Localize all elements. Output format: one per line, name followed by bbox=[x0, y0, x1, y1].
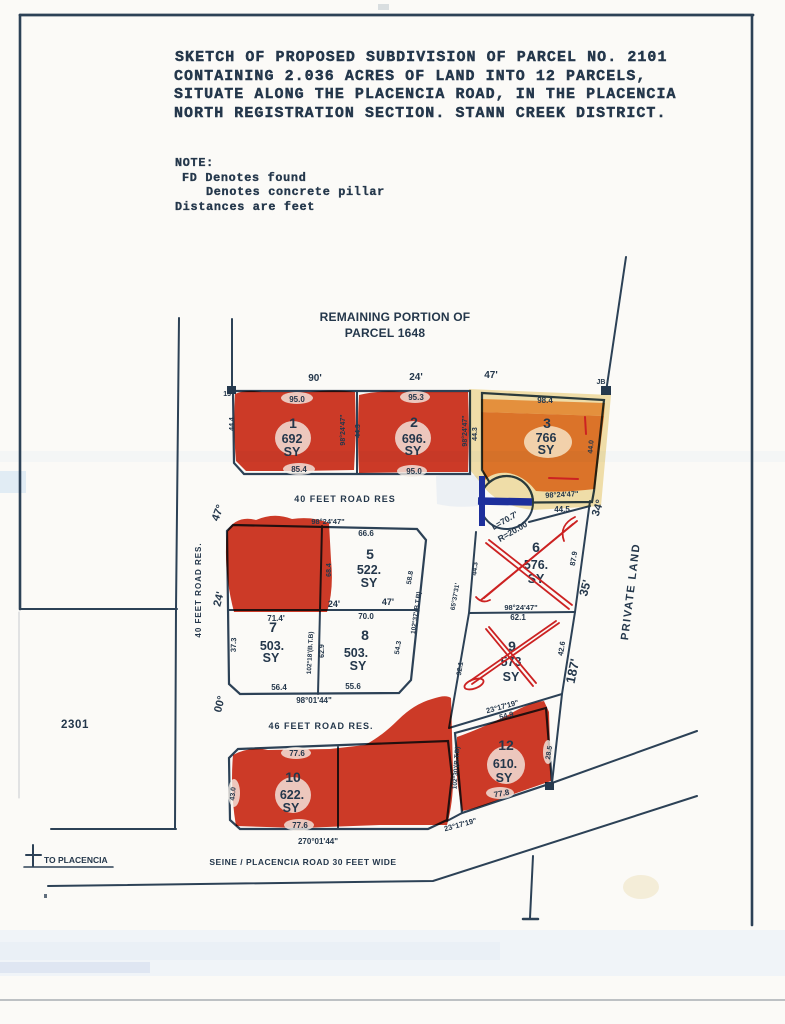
svg-text:2: 2 bbox=[410, 414, 418, 430]
svg-text:85.4: 85.4 bbox=[291, 465, 307, 474]
svg-text:98°24'47": 98°24'47" bbox=[504, 603, 538, 612]
svg-text:47': 47' bbox=[484, 370, 498, 381]
svg-text:SY: SY bbox=[350, 659, 367, 673]
svg-text:SY: SY bbox=[496, 771, 513, 785]
svg-text:55.6: 55.6 bbox=[345, 682, 361, 691]
svg-text:70.0: 70.0 bbox=[358, 612, 374, 621]
svg-text:102°18'(B.T.B): 102°18'(B.T.B) bbox=[305, 631, 315, 674]
svg-text:SY: SY bbox=[405, 444, 422, 458]
svg-text:28.5: 28.5 bbox=[545, 745, 554, 760]
svg-text:47°: 47° bbox=[210, 503, 227, 523]
svg-text:87.9: 87.9 bbox=[568, 551, 579, 567]
svg-text:NORTH REGISTRATION SECTION. ST: NORTH REGISTRATION SECTION. STANN CREEK … bbox=[174, 105, 667, 122]
svg-text:SY: SY bbox=[538, 443, 555, 457]
svg-text:65°37'31': 65°37'31' bbox=[449, 582, 462, 611]
svg-text:NOTE:: NOTE: bbox=[175, 156, 214, 170]
svg-text:35': 35' bbox=[576, 578, 594, 597]
svg-text:95.0: 95.0 bbox=[289, 395, 305, 404]
svg-text:5: 5 bbox=[366, 546, 374, 562]
svg-text:692: 692 bbox=[282, 432, 303, 446]
svg-text:SY: SY bbox=[283, 801, 300, 815]
svg-text:TO PLACENCIA: TO PLACENCIA bbox=[44, 855, 108, 865]
svg-text:77.6: 77.6 bbox=[289, 749, 305, 758]
svg-text:56.4: 56.4 bbox=[271, 683, 287, 692]
svg-text:40 FEET ROAD RES: 40 FEET ROAD RES bbox=[294, 494, 396, 504]
svg-text:54.3: 54.3 bbox=[394, 640, 403, 655]
svg-text:10: 10 bbox=[285, 769, 301, 785]
svg-text:7: 7 bbox=[269, 619, 277, 635]
svg-text:98°24'47": 98°24'47" bbox=[311, 517, 345, 526]
svg-text:REMAINING PORTION OF: REMAINING PORTION OF bbox=[320, 310, 471, 324]
svg-text:40 FEET ROAD RES.: 40 FEET ROAD RES. bbox=[194, 542, 203, 637]
svg-text:98°24'47": 98°24'47" bbox=[461, 415, 469, 446]
svg-text:2301: 2301 bbox=[61, 719, 89, 731]
svg-text:95.3: 95.3 bbox=[408, 393, 424, 402]
svg-text:62.9: 62.9 bbox=[319, 644, 326, 658]
svg-text:98.4: 98.4 bbox=[537, 396, 553, 405]
svg-text:98°24'47": 98°24'47" bbox=[339, 414, 347, 445]
svg-text:610.: 610. bbox=[493, 757, 517, 771]
svg-text:CONTAINING 2.036 ACRES OF LAND: CONTAINING 2.036 ACRES OF LAND INTO 12 P… bbox=[174, 68, 646, 85]
svg-text:98°01'44": 98°01'44" bbox=[296, 696, 332, 705]
svg-text:92.1: 92.1 bbox=[456, 661, 465, 676]
svg-text:622.: 622. bbox=[280, 788, 304, 802]
svg-text:13: 13 bbox=[223, 391, 231, 398]
svg-text:24': 24' bbox=[328, 599, 340, 609]
svg-text:SEINE / PLACENCIA ROAD 30 FEET: SEINE / PLACENCIA ROAD 30 FEET WIDE bbox=[209, 857, 396, 867]
svg-text:3: 3 bbox=[543, 415, 551, 431]
svg-text:503.: 503. bbox=[344, 646, 368, 660]
svg-text:PARCEL 1648: PARCEL 1648 bbox=[345, 326, 426, 340]
svg-text:SKETCH OF PROPOSED SUBDIVISION: SKETCH OF PROPOSED SUBDIVISION OF PARCEL… bbox=[175, 49, 668, 66]
svg-text:102°37'(B.T.B): 102°37'(B.T.B) bbox=[409, 591, 423, 635]
svg-text:24': 24' bbox=[211, 590, 227, 608]
svg-text:58.8: 58.8 bbox=[406, 570, 415, 585]
svg-text:Distances are feet: Distances are feet bbox=[175, 200, 315, 214]
svg-text:44.3: 44.3 bbox=[472, 427, 479, 441]
svg-text:522.: 522. bbox=[357, 563, 381, 577]
svg-text:JB: JB bbox=[597, 379, 606, 386]
svg-text:Denotes concrete pillar: Denotes concrete pillar bbox=[206, 185, 385, 199]
svg-text:1: 1 bbox=[289, 415, 297, 431]
svg-text:42.6: 42.6 bbox=[556, 641, 567, 657]
svg-text:SY: SY bbox=[263, 651, 280, 665]
svg-text:37.3: 37.3 bbox=[229, 637, 239, 652]
svg-text:46 FEET ROAD RES.: 46 FEET ROAD RES. bbox=[268, 721, 373, 731]
svg-text:12: 12 bbox=[498, 737, 514, 753]
svg-text:44.3: 44.3 bbox=[355, 424, 362, 438]
svg-text:187': 187' bbox=[563, 657, 583, 684]
svg-text:PRIVATE LAND: PRIVATE LAND bbox=[619, 542, 643, 640]
svg-text:270°01'44": 270°01'44" bbox=[298, 837, 338, 846]
svg-text:44.5: 44.5 bbox=[554, 505, 570, 514]
svg-text:SITUATE ALONG THE PLACENCIA RO: SITUATE ALONG THE PLACENCIA ROAD, IN THE… bbox=[174, 86, 677, 103]
svg-text:44.3: 44.3 bbox=[471, 562, 479, 576]
svg-text:66.6: 66.6 bbox=[358, 529, 374, 538]
svg-text:95.0: 95.0 bbox=[406, 467, 422, 476]
svg-text:43.0: 43.0 bbox=[229, 787, 237, 801]
svg-text:44.4: 44.4 bbox=[229, 417, 236, 431]
svg-text:44.0: 44.0 bbox=[587, 440, 595, 454]
svg-text:FD Denotes found: FD Denotes found bbox=[182, 171, 306, 185]
svg-text:24': 24' bbox=[409, 372, 423, 383]
svg-text:47': 47' bbox=[382, 597, 394, 607]
svg-text:SY: SY bbox=[503, 670, 520, 684]
svg-text:SY: SY bbox=[284, 445, 301, 459]
svg-text:77.6: 77.6 bbox=[292, 821, 308, 830]
svg-text:8: 8 bbox=[361, 627, 369, 643]
svg-text:68.4: 68.4 bbox=[326, 563, 333, 577]
svg-text:90': 90' bbox=[308, 373, 322, 384]
svg-text:00°: 00° bbox=[212, 695, 228, 714]
svg-text:98°24'47": 98°24'47" bbox=[545, 489, 579, 500]
svg-text:SY: SY bbox=[361, 576, 378, 590]
svg-text:62.1: 62.1 bbox=[510, 613, 526, 622]
